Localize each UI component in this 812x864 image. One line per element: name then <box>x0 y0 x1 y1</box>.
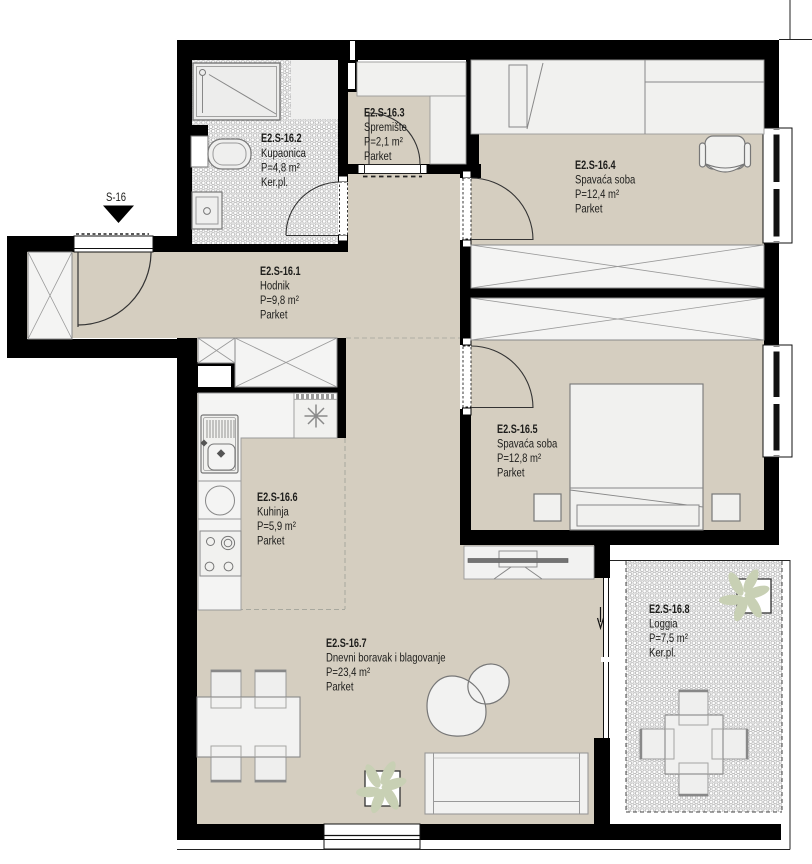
svg-text:Parket: Parket <box>497 466 525 479</box>
svg-text:P=12,4 m²: P=12,4 m² <box>575 188 619 201</box>
svg-text:Kupaonica: Kupaonica <box>261 147 307 160</box>
svg-text:Ker.pl.: Ker.pl. <box>649 646 676 659</box>
svg-text:Parket: Parket <box>257 534 285 547</box>
svg-text:Kuhinja: Kuhinja <box>257 505 290 518</box>
svg-text:Parket: Parket <box>326 680 354 693</box>
svg-text:P=2,1 m²: P=2,1 m² <box>364 135 403 148</box>
svg-text:P=23,4 m²: P=23,4 m² <box>326 666 370 679</box>
svg-text:E2.S-16.4: E2.S-16.4 <box>575 159 616 173</box>
svg-text:Parket: Parket <box>575 202 603 215</box>
svg-text:P=4,8 m²: P=4,8 m² <box>261 161 300 174</box>
svg-text:Dnevni boravak i blagovanje: Dnevni boravak i blagovanje <box>326 651 446 664</box>
svg-text:Spavaća soba: Spavaća soba <box>497 437 558 450</box>
svg-text:Ker.pl.: Ker.pl. <box>261 176 288 189</box>
svg-text:P=12,8 m²: P=12,8 m² <box>497 452 541 465</box>
svg-text:E2.S-16.8: E2.S-16.8 <box>649 603 690 617</box>
svg-text:Spavaća soba: Spavaća soba <box>575 173 636 186</box>
svg-text:E2.S-16.7: E2.S-16.7 <box>326 637 367 651</box>
svg-text:Parket: Parket <box>364 150 392 163</box>
svg-text:Spremište: Spremište <box>364 121 407 134</box>
svg-text:Hodnik: Hodnik <box>260 279 290 292</box>
svg-text:E2.S-16.2: E2.S-16.2 <box>261 132 302 146</box>
svg-text:Loggia: Loggia <box>649 617 678 630</box>
svg-text:P=5,9 m²: P=5,9 m² <box>257 520 296 533</box>
svg-text:E2.S-16.1: E2.S-16.1 <box>260 265 301 279</box>
svg-text:Parket: Parket <box>260 308 288 321</box>
svg-text:E2.S-16.6: E2.S-16.6 <box>257 491 298 505</box>
svg-text:P=7,5 m²: P=7,5 m² <box>649 632 688 645</box>
svg-text:P=9,8 m²: P=9,8 m² <box>260 294 299 307</box>
svg-text:S-16: S-16 <box>106 191 126 204</box>
svg-text:E2.S-16.3: E2.S-16.3 <box>364 106 405 120</box>
svg-text:E2.S-16.5: E2.S-16.5 <box>497 423 538 437</box>
